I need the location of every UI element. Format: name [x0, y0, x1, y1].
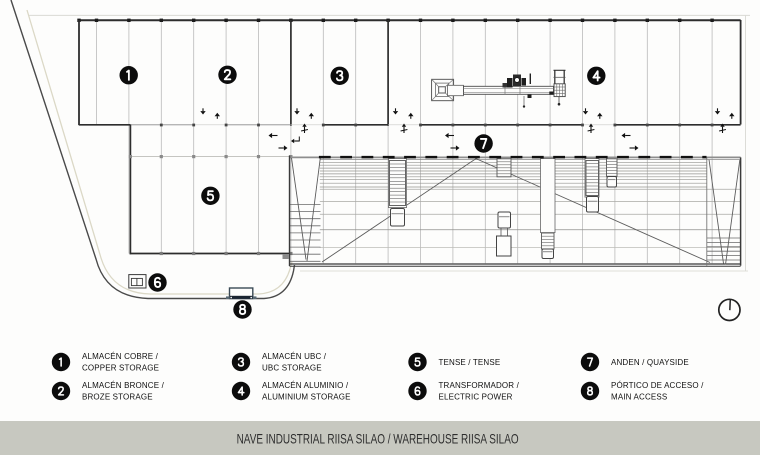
svg-text:ALMACÉN BRONCE /: ALMACÉN BRONCE / — [82, 381, 165, 390]
svg-text:COPPER STORAGE: COPPER STORAGE — [82, 363, 159, 372]
svg-text:BROZE STORAGE: BROZE STORAGE — [82, 392, 153, 401]
svg-text:UBC STORAGE: UBC STORAGE — [262, 363, 322, 372]
svg-text:ALMACÉN ALUMINIO /: ALMACÉN ALUMINIO / — [262, 381, 349, 390]
svg-text:NAVE INDUSTRIAL RIISA SILAO /: NAVE INDUSTRIAL RIISA SILAO / WAREHOUSE … — [237, 430, 519, 446]
svg-text:ALUMINIUM STORAGE: ALUMINIUM STORAGE — [262, 392, 351, 401]
svg-text:PÓRTICO DE ACCESO /: PÓRTICO DE ACCESO / — [611, 381, 704, 390]
svg-text:ALMACÉN UBC /: ALMACÉN UBC / — [262, 352, 327, 361]
svg-text:ELECTRIC POWER: ELECTRIC POWER — [439, 392, 513, 401]
svg-text:ALMACÉN COBRE /: ALMACÉN COBRE / — [82, 352, 159, 361]
svg-text:ANDEN / QUAYSIDE: ANDEN / QUAYSIDE — [611, 358, 689, 367]
svg-text:MAIN ACCESS: MAIN ACCESS — [611, 392, 667, 401]
svg-text:TRANSFORMADOR /: TRANSFORMADOR / — [439, 381, 520, 390]
svg-text:TENSE / TENSE: TENSE / TENSE — [439, 358, 501, 367]
